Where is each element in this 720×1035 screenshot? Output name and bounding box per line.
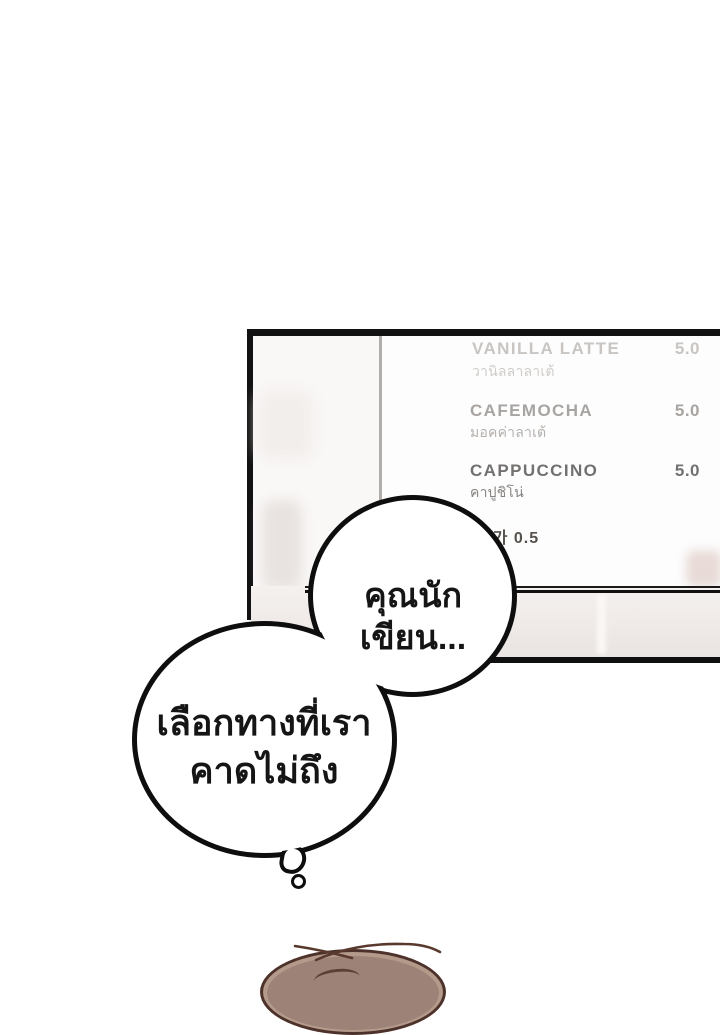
speech-text-2-line1: เลือกทางที่เรา <box>139 699 389 747</box>
hair-strands <box>0 0 720 979</box>
bubble-union-eraser <box>285 849 301 869</box>
bubble-tail-dot <box>291 874 306 889</box>
speech-text-2-line2: คาดไม่ถึง <box>139 747 389 795</box>
speech-text-1: คุณนักเขียน... <box>311 575 515 659</box>
comic-panel: { "menu_board": { "items": [ {"name": "V… <box>0 0 720 979</box>
speech-text-2: เลือกทางที่เรา คาดไม่ถึง <box>139 699 389 795</box>
